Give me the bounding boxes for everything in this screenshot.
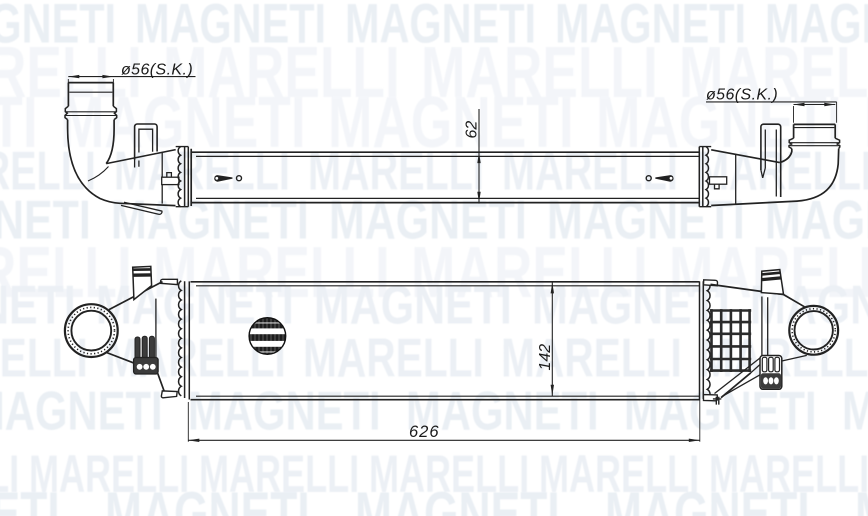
svg-text:ø56(S.K.): ø56(S.K.) [121, 61, 193, 78]
svg-text:626: 626 [409, 423, 440, 441]
svg-text:MAGNETI: MAGNETI [624, 381, 817, 442]
svg-text:MAGNETI: MAGNETI [0, 381, 163, 442]
svg-text:MAGNETI: MAGNETI [605, 481, 810, 516]
svg-text:142: 142 [537, 344, 554, 371]
svg-text:ø56(S.K.): ø56(S.K.) [706, 87, 778, 104]
svg-text:MAGNETI: MAGNETI [188, 381, 381, 442]
svg-text:MAGNETI: MAGNETI [355, 481, 560, 516]
svg-text:MAGNETI: MAGNETI [314, 275, 512, 336]
svg-text:MARELLI: MARELLI [303, 328, 484, 389]
svg-text:62: 62 [464, 121, 481, 139]
svg-text:MAGNETI: MAGNETI [105, 481, 310, 516]
svg-text:MAGNETI: MAGNETI [842, 381, 868, 442]
svg-text:MAGNETI: MAGNETI [0, 481, 60, 516]
svg-text:MARELLI: MARELLI [501, 328, 682, 389]
svg-text:MARELLI: MARELLI [0, 328, 88, 389]
svg-text:MAGNETI: MAGNETI [855, 481, 868, 516]
